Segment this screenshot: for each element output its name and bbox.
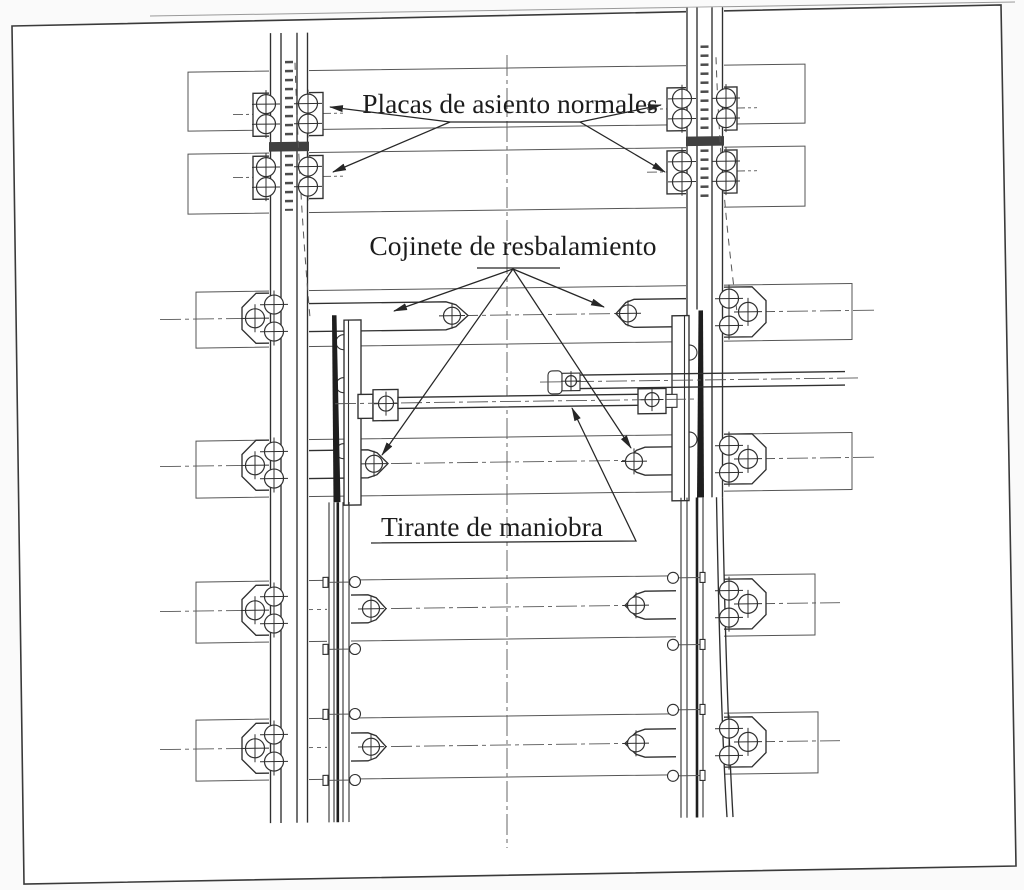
drawing-border: [12, 5, 1016, 884]
rod-link: [666, 394, 677, 407]
rod-clevis: [358, 394, 373, 418]
scanned-drawing-page: Placas de asiento normales Cojinete de r…: [0, 0, 1024, 890]
drawing-svg: Placas de asiento normales Cojinete de r…: [0, 0, 1024, 890]
rail-joint-left: [269, 142, 309, 152]
left-stock-rail: [269, 33, 309, 824]
label-tirante: Tirante de maniobra: [381, 511, 603, 542]
slide-bearing-plate: [300, 302, 468, 332]
rail-joint-right: [686, 136, 724, 146]
blade-bracket: [672, 316, 689, 501]
label-cojinete: Cojinete de resbalamiento: [369, 230, 656, 261]
